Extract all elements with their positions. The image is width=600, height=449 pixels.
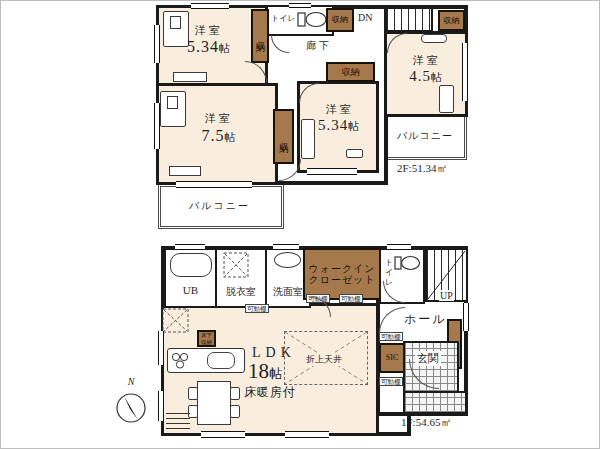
bedroom-center-size: 5.34帖 [301,117,377,134]
floor-storage: 床下 収納 [197,330,216,347]
closet-top-center: 収納 [326,8,354,32]
window [463,303,469,331]
toilet-label-2f: トイレ [271,13,296,24]
window [285,431,329,438]
chair [230,387,240,400]
movable-shelf-label: 可動棚 [379,377,403,386]
bedroom-center-name: 洋室 [312,102,368,117]
bedroom-ne-name: 洋室 [399,53,455,68]
movable-shelf-label: 可動棚 [245,304,269,313]
shelf-icon-ne [421,34,447,43]
porch-floor [403,391,467,414]
window [191,3,229,9]
bedroom-ne-size: 4.5帖 [393,68,459,85]
movable-shelf-label: 可動棚 [339,294,363,303]
bedroom-nw-size: 5.34帖 [169,38,249,56]
balcony-sw-label: バルコニー [189,199,250,213]
sic-label: SIC [386,353,398,362]
window [462,43,468,101]
desk-icon-nw [173,72,207,82]
toilet-icon-2f [297,10,329,30]
balcony-e-label: バルコニー [397,129,453,143]
compass-icon [109,389,153,429]
ldk-size: 18帖 [248,359,282,384]
washer-icon [223,252,249,278]
bedroom-nw-name: 洋室 [179,23,239,38]
hallway-label: 廊下 [306,39,332,53]
stairs-down-label: DN [358,12,372,23]
window [158,331,164,365]
bed-icon-ne [439,85,454,113]
window [273,244,299,250]
window [307,168,357,175]
toilet-icon-1f [394,254,422,272]
window [201,431,245,438]
closet-mid: 収納 [326,62,375,82]
bedroom-sw-size: 7.5帖 [181,127,257,145]
step-lines [166,412,190,429]
floor-storage-line2: 収納 [201,339,212,345]
closet-between-rooms: 収納 [273,109,294,164]
desk-icon-sw [169,166,201,176]
closet-top-right: 収納 [438,10,465,31]
stairs-up-label: UP [439,290,454,301]
unit-bath-label: UB [164,284,217,296]
sic-closet: SIC [379,343,405,373]
chair [230,405,240,418]
nightstand-icon-center [346,149,363,158]
window [289,3,311,8]
raised-ceiling-label: 折上天井 [304,353,344,366]
stairs-down [385,7,433,32]
dressing-room-label: 脱衣室 [215,285,267,299]
hall-label: ホール [404,311,447,328]
window [158,391,164,421]
floor2-area-label: 2F:51.34㎡ [397,161,447,176]
wic-label-line1: ウォークイン [308,263,375,275]
chair [188,387,198,400]
bathtub-icon [170,253,212,277]
stove-icon [170,351,190,370]
wic-label-line2: クローゼット [308,274,375,286]
walk-in-closet: ウォークイン クローゼット [303,248,381,300]
window [176,181,252,188]
compass: N [109,371,153,421]
ldk-feature: 床暖房付 [244,384,296,401]
window [387,244,411,250]
window [154,103,160,149]
floor-plan-canvas: トイレ 収納 収納 収納 収納 収納 DN 廊下 洋室 5.34帖 洋室 7.5… [0,0,600,449]
compass-north-label: N [128,376,135,387]
kitchen-sink [207,352,235,369]
pillow-icon-sw [167,96,178,109]
closet-nw: 収納 [251,9,269,63]
window [175,244,205,250]
movable-shelf-label: 可動棚 [379,332,403,341]
fridge-space-icon [162,308,189,333]
floor1-area-label: 1F:54.65㎡ [401,415,451,430]
bedroom-sw-name: 洋室 [189,111,249,126]
dining-table [197,381,231,425]
window [154,25,160,63]
sink-icon [274,252,301,268]
